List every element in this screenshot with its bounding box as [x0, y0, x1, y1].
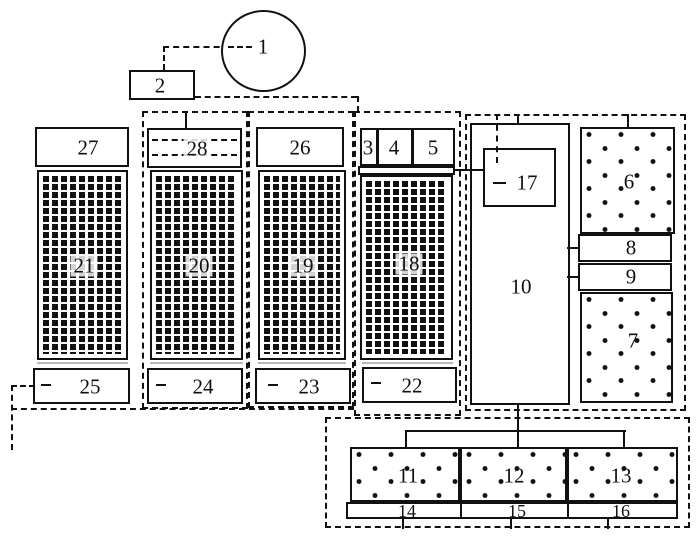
separator-line — [362, 362, 453, 364]
label-13: 13 — [611, 466, 632, 487]
label-8: 8 — [626, 238, 637, 259]
tick-enclosure-to-28 — [185, 111, 187, 129]
strip-divider-1 — [460, 502, 462, 519]
stub-10-down — [517, 404, 519, 432]
label-18: 18 — [396, 254, 423, 275]
label-22: 22 — [402, 376, 423, 397]
stub-16-down — [607, 518, 609, 529]
label-14: 14 — [398, 502, 416, 520]
leader-dash-22 — [371, 382, 381, 384]
dashed-elbow-down — [357, 96, 359, 112]
bracket-right-drop — [623, 430, 625, 448]
label-15: 15 — [508, 502, 526, 520]
tick-enclosure-to-6 — [627, 114, 629, 128]
label-21: 21 — [71, 256, 98, 277]
separator-line — [258, 362, 346, 364]
connector-10-to-8 — [567, 247, 580, 249]
texture-box-7 — [580, 292, 673, 403]
label-12: 12 — [504, 466, 525, 487]
label-5: 5 — [428, 138, 439, 159]
dashed-drop-to-box17 — [496, 114, 498, 163]
leader-dash-17 — [493, 182, 506, 184]
bracket-center-drop — [517, 430, 519, 448]
leader-dash-1 — [228, 46, 252, 48]
label-20: 20 — [186, 256, 213, 277]
label-26: 26 — [290, 138, 311, 159]
label-25: 25 — [80, 377, 101, 398]
label-27: 27 — [78, 138, 99, 159]
leader-dash-25 — [41, 384, 51, 386]
label-10: 10 — [511, 277, 532, 298]
connector-18-to-17 — [453, 169, 483, 171]
separator-line — [150, 362, 243, 364]
separator-line — [37, 362, 128, 364]
label-28: 28 — [184, 139, 211, 160]
label-17: 17 — [517, 173, 538, 194]
label-7: 7 — [628, 331, 639, 352]
connector-10-to-9 — [567, 276, 580, 278]
label-19: 19 — [290, 256, 317, 277]
strip-divider-2 — [567, 502, 569, 519]
diagram-canvas: 1 2 27 28 26 3 4 5 21 20 19 18 17 10 6 8… — [0, 0, 700, 541]
label-16: 16 — [612, 502, 630, 520]
leader-dash-24 — [156, 384, 166, 386]
label-4: 4 — [389, 138, 400, 159]
dashed-leader-box25 — [11, 385, 35, 387]
dashed-line-from-box2 — [195, 96, 357, 98]
dashed-drop-to-box2 — [163, 46, 165, 70]
leader-dash-23 — [268, 384, 278, 386]
label-24: 24 — [193, 377, 214, 398]
label-2: 2 — [155, 76, 166, 97]
label-9: 9 — [626, 267, 637, 288]
plate-under-345 — [358, 166, 455, 175]
label-6: 6 — [624, 172, 635, 193]
dashed-line-bottom-left — [11, 408, 354, 410]
dashed-line-left-vertical — [11, 385, 13, 450]
label-1: 1 — [258, 37, 269, 58]
label-3: 3 — [363, 138, 374, 159]
label-23: 23 — [299, 377, 320, 398]
tick-enclosure-to-10 — [517, 114, 519, 124]
bracket-left-drop — [405, 430, 407, 448]
bracket-line — [405, 430, 626, 432]
label-11: 11 — [398, 466, 418, 487]
